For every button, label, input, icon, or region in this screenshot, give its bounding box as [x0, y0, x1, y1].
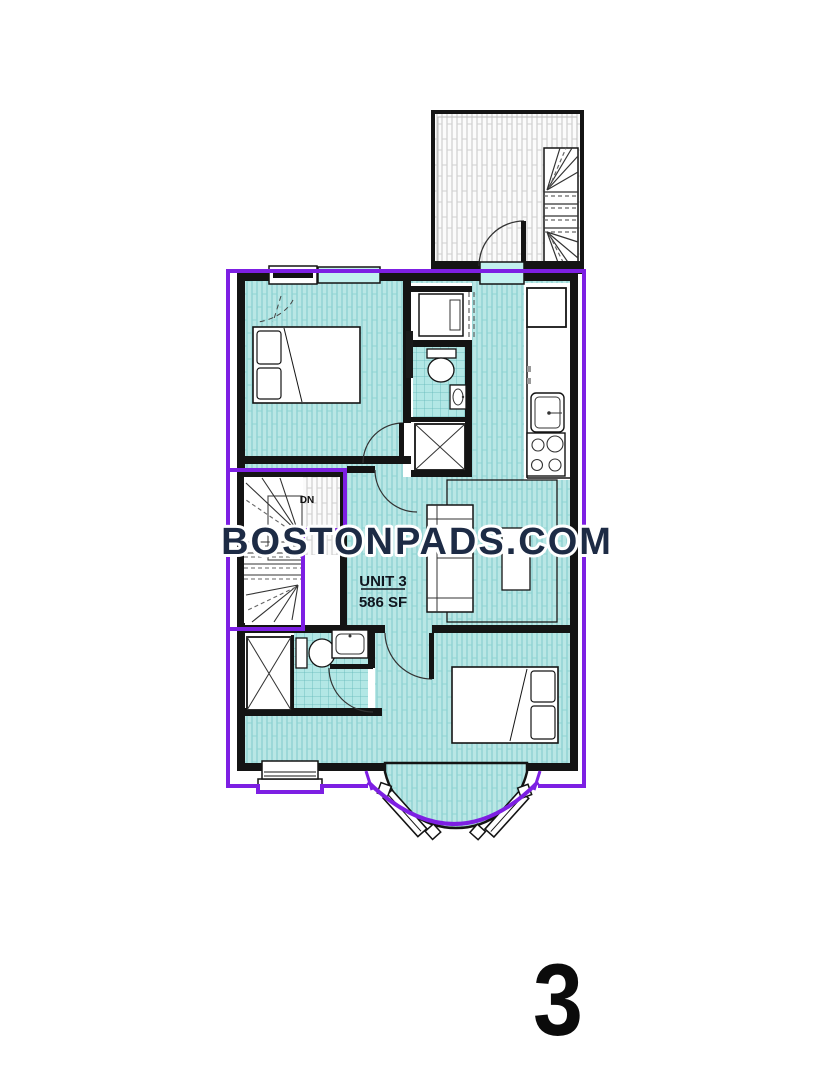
bedroom1-door-leaf — [399, 423, 404, 463]
refrigerator — [527, 288, 566, 327]
washer-dryer — [419, 294, 463, 336]
kitchen-sink — [531, 393, 564, 432]
unit-area: 586 SF — [359, 594, 407, 611]
window-bottom — [258, 761, 322, 791]
pillow — [257, 368, 281, 399]
floor-number: 3 — [505, 948, 611, 1058]
shower-2 — [247, 637, 291, 710]
unit-title: UNIT 3 — [359, 573, 407, 590]
pillow — [531, 706, 555, 739]
floor-plan: DN — [0, 0, 835, 1080]
bathroom1-door-leaf — [406, 331, 413, 378]
stairs-dn-label: DN — [300, 495, 314, 506]
bed-2 — [452, 667, 558, 743]
deck-stairs — [544, 148, 578, 268]
bathroom2-door-leaf — [330, 664, 373, 669]
pillow — [257, 331, 281, 364]
toilet-1 — [427, 349, 456, 382]
sink-2 — [332, 630, 368, 658]
shower-1 — [415, 424, 465, 470]
deck-door-leaf — [521, 221, 526, 266]
roof-deck — [433, 112, 582, 272]
sink-1 — [450, 385, 466, 409]
pillow — [531, 671, 555, 702]
toilet-2 — [296, 638, 335, 668]
watermark: BOSTONPADS.COM — [221, 521, 613, 563]
stove — [527, 433, 565, 476]
bed-1 — [253, 327, 360, 403]
bedroom2-door-leaf — [429, 633, 434, 679]
